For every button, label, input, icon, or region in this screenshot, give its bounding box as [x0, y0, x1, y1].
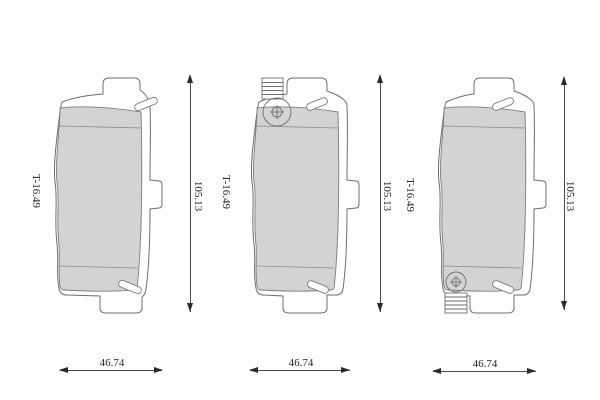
thickness-label: T-16.49	[219, 164, 233, 220]
arrow-down-icon	[187, 303, 193, 312]
friction-material	[440, 107, 525, 291]
arrow-left-icon	[59, 367, 68, 373]
width-dimension-label: 46.74	[455, 357, 515, 371]
clip-spring-tab	[445, 293, 467, 313]
height-dimension-label: 105.13	[380, 174, 394, 218]
arrow-down-icon	[561, 301, 567, 310]
friction-material	[253, 107, 338, 291]
height-dimension-label: 105.13	[563, 174, 577, 218]
friction-material	[56, 107, 141, 291]
arrow-right-icon	[341, 367, 350, 373]
arrow-left-icon	[249, 367, 258, 373]
arrow-right-icon	[527, 368, 536, 374]
thickness-label: T-16.49	[29, 163, 43, 219]
brake-pad-drawing-middle	[243, 68, 377, 320]
height-dimension-label: 105.13	[191, 174, 205, 218]
width-dimension-line	[433, 371, 536, 372]
brake-pad-drawing-right	[430, 68, 564, 320]
arrow-up-icon	[187, 74, 193, 83]
clip-spring-tab	[262, 78, 283, 99]
arrow-down-icon	[377, 303, 383, 312]
technical-drawing-canvas: T-16.49 105.13 46.74 T-16.49	[0, 0, 600, 400]
brake-pad-drawing-left	[46, 68, 180, 320]
arrow-left-icon	[432, 368, 441, 374]
width-dimension-label: 46.74	[82, 356, 142, 370]
arrow-up-icon	[377, 74, 383, 83]
thickness-label: T-16.49	[403, 167, 417, 223]
width-dimension-line	[60, 370, 162, 371]
width-dimension-line	[250, 370, 350, 371]
width-dimension-label: 46.74	[271, 356, 331, 370]
arrow-up-icon	[561, 76, 567, 85]
arrow-right-icon	[154, 367, 163, 373]
